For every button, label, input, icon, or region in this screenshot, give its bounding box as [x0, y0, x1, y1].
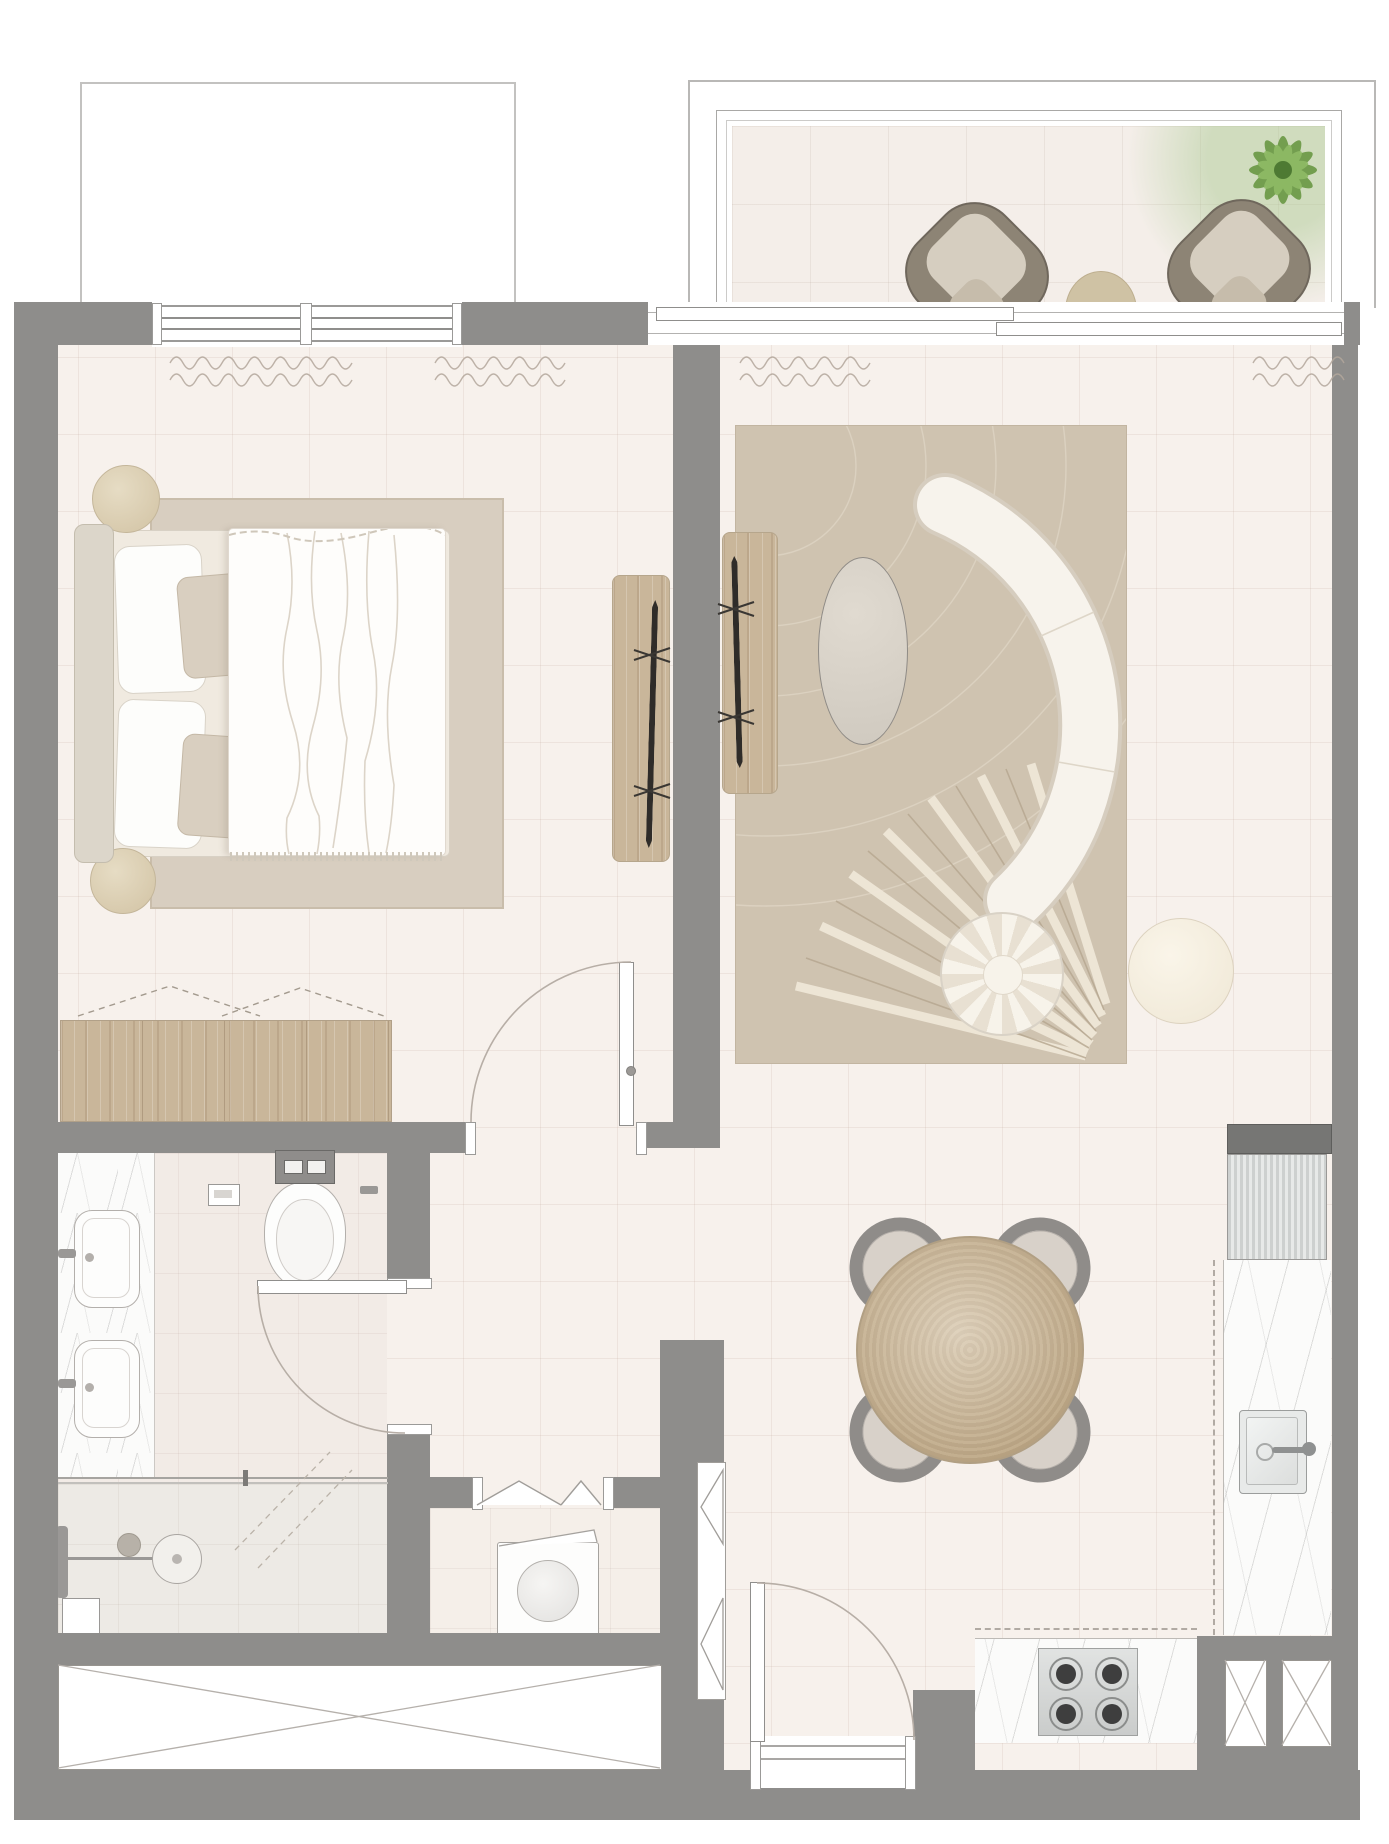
door-jamb [472, 1477, 483, 1510]
kitchen-faucet-base [1302, 1442, 1316, 1456]
vanity-faucet [58, 1379, 76, 1388]
threshold-line [750, 1758, 915, 1760]
shower-rosette [117, 1533, 141, 1557]
burner-dot [1056, 1664, 1076, 1684]
washing-machine [497, 1542, 599, 1636]
floor-plan-canvas [0, 0, 1389, 1844]
door-jamb [603, 1477, 614, 1510]
washer-drum [517, 1560, 579, 1622]
window-mullion [452, 303, 462, 345]
glass-shower-screen [58, 1477, 388, 1479]
hallway-tall-cabinet [697, 1462, 726, 1700]
oval-coffee-table [818, 557, 908, 745]
door-jamb [636, 1122, 647, 1155]
window-mullion [300, 303, 312, 345]
burner-dot [1102, 1664, 1122, 1684]
round-side-table [1128, 918, 1234, 1024]
door-jamb [387, 1424, 432, 1435]
wall-top-mid [462, 302, 648, 345]
entry-threshold [750, 1736, 915, 1788]
service-shaft [1225, 1660, 1267, 1747]
bedside-stool [92, 465, 160, 533]
wall-top-left [14, 302, 152, 345]
bedroom-door-leaf [619, 962, 634, 1126]
toilet [264, 1182, 346, 1290]
bathroom-door-leaf [257, 1280, 407, 1294]
door-stop [626, 1066, 636, 1076]
living-tv-console [722, 532, 778, 794]
wall-bottom [14, 1770, 1360, 1820]
flush-plate [275, 1150, 335, 1184]
wall-right [1332, 302, 1358, 1820]
wall-left [14, 302, 58, 1820]
threshold-line [750, 1745, 915, 1747]
burner-dot [1102, 1704, 1122, 1724]
shower-head [152, 1534, 202, 1584]
dining-table [856, 1236, 1084, 1464]
vanity-faucet [58, 1249, 76, 1258]
wall-entry-stub [913, 1690, 975, 1772]
kitchen-tall-cabinet [1227, 1124, 1332, 1154]
living-rug [735, 425, 1127, 1064]
pouf-center [983, 955, 1023, 995]
flush-button [284, 1160, 303, 1174]
window-mullion [152, 303, 162, 345]
adjacent-terrace-outline [80, 82, 516, 306]
shower-niche [62, 1598, 100, 1636]
screen-handle [243, 1470, 248, 1486]
basin-drain [85, 1383, 94, 1392]
wall-hook [360, 1186, 378, 1194]
refrigerator [1227, 1154, 1327, 1260]
slider-panel [996, 322, 1342, 336]
sink-drain [1256, 1443, 1274, 1461]
bed-headboard [74, 524, 114, 863]
wall-laundry-right [612, 1477, 663, 1508]
bedroom-tv-console [612, 575, 670, 862]
hob [1038, 1648, 1138, 1736]
kitchen-upper-cabinet-dashed [975, 1628, 1197, 1630]
slider-panel [656, 307, 1014, 321]
basin-drain [85, 1253, 94, 1262]
bed-fringe [230, 852, 442, 861]
door-jamb [750, 1736, 761, 1790]
plant-icon [1225, 112, 1341, 228]
vanity-basin [74, 1210, 140, 1308]
burner-dot [1056, 1704, 1076, 1724]
round-pouf [940, 912, 1064, 1036]
built-in-closet [58, 1665, 662, 1770]
wall-laundry-left [430, 1477, 473, 1508]
wall-divider-bed-living [673, 345, 720, 1148]
wall-bathroom-right-upper [387, 1122, 430, 1287]
wardrobe-dresser [60, 1020, 392, 1122]
toilet-seat [276, 1199, 334, 1281]
entry-door-leaf [750, 1582, 765, 1742]
glass-shower-screen-line2 [58, 1482, 388, 1484]
wall-bathroom-right-lower [387, 1433, 430, 1635]
door-jamb [905, 1736, 916, 1790]
bedroom-window [152, 300, 462, 347]
door-jamb [465, 1122, 476, 1155]
tp-holder [208, 1184, 240, 1206]
vanity-basin [74, 1340, 140, 1438]
shower-head-center [172, 1554, 182, 1564]
service-shaft [1282, 1660, 1332, 1747]
bed-duvet [228, 528, 446, 856]
flush-button [307, 1160, 326, 1174]
kitchen-upper-cabinet-dashed [1213, 1260, 1215, 1635]
sliding-balcony-door [648, 302, 1344, 345]
tp-roll [214, 1190, 232, 1198]
wall-band-above-closet [58, 1633, 663, 1667]
